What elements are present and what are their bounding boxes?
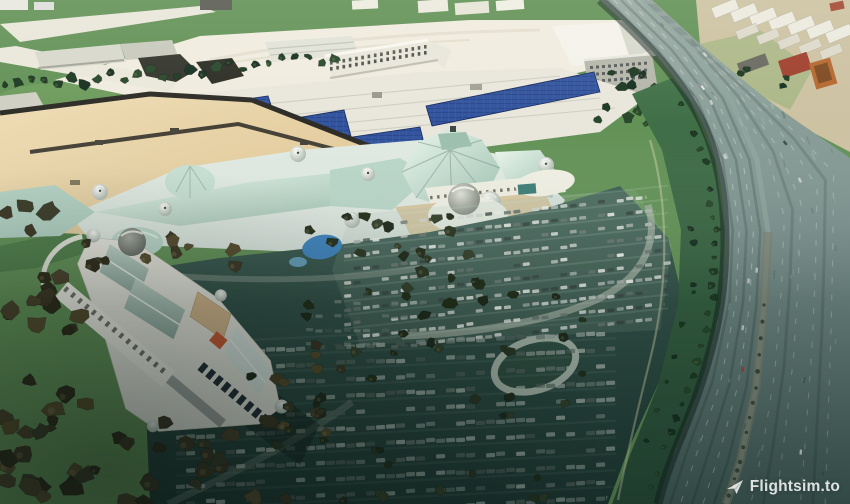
flightsim-screenshot: Flightsim.to [0,0,850,504]
color-grading [0,0,850,504]
flightsim-watermark: Flightsim.to [726,478,840,496]
paper-plane-icon [726,478,744,496]
aerial-scene [0,0,850,504]
watermark-label: Flightsim.to [750,478,840,496]
